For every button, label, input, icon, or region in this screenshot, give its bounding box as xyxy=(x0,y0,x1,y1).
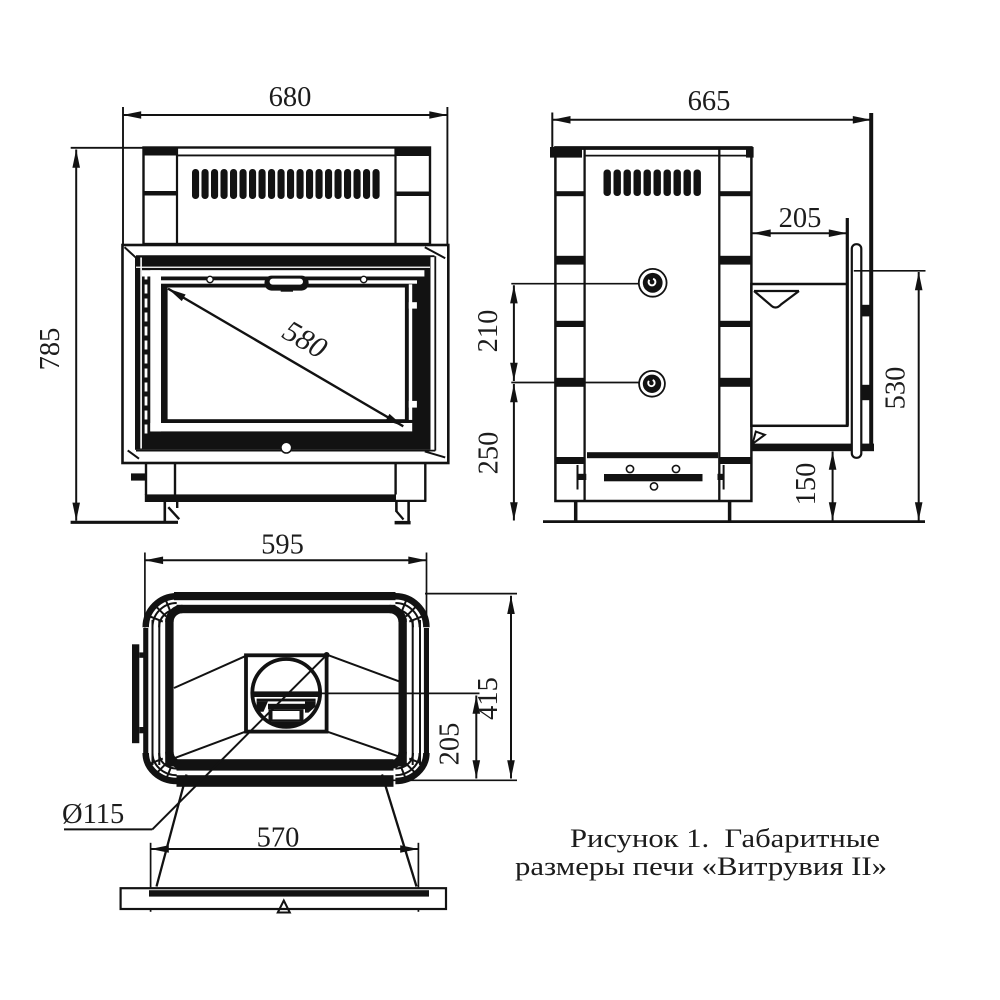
svg-text:415: 415 xyxy=(473,677,504,720)
svg-text:205: 205 xyxy=(435,723,466,766)
svg-text:570: 570 xyxy=(257,823,300,854)
svg-text:250: 250 xyxy=(474,432,505,475)
svg-text:530: 530 xyxy=(881,367,912,410)
svg-text:665: 665 xyxy=(688,86,731,117)
svg-text:680: 680 xyxy=(269,82,312,113)
svg-text:205: 205 xyxy=(779,203,822,234)
svg-text:Рисунок 1. Габаритные: Рисунок 1. Габаритные xyxy=(570,824,880,853)
svg-text:Ø115: Ø115 xyxy=(62,799,124,830)
svg-text:размеры печи «Витрувия II»: размеры печи «Витрувия II» xyxy=(515,852,887,881)
svg-text:785: 785 xyxy=(35,328,66,371)
svg-text:595: 595 xyxy=(261,530,304,561)
svg-text:210: 210 xyxy=(473,310,504,353)
svg-text:150: 150 xyxy=(791,463,822,506)
